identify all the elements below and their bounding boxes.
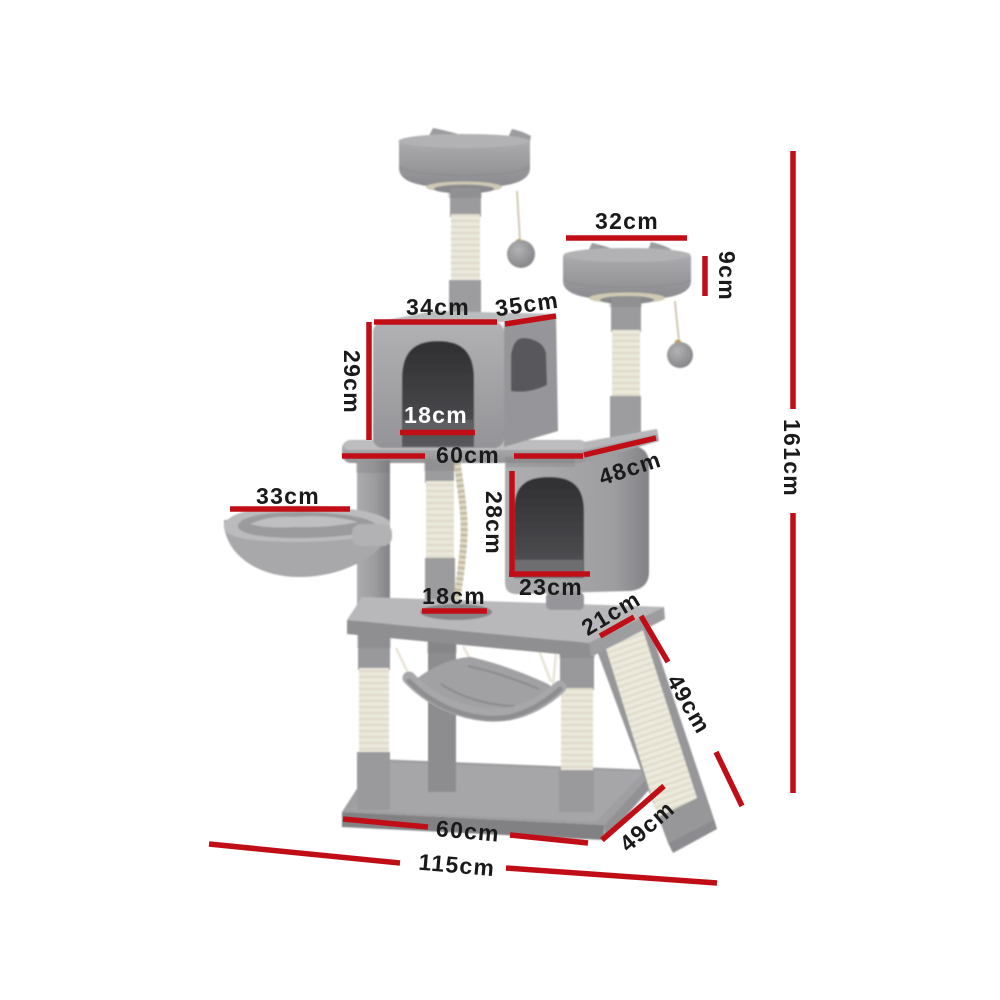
svg-text:28cm: 28cm — [481, 491, 507, 555]
svg-text:29cm: 29cm — [339, 350, 365, 414]
svg-text:60cm: 60cm — [435, 815, 501, 846]
svg-text:161cm: 161cm — [779, 419, 805, 497]
svg-text:18cm: 18cm — [404, 402, 468, 428]
svg-text:9cm: 9cm — [714, 251, 740, 301]
svg-text:18cm: 18cm — [422, 583, 486, 609]
svg-text:32cm: 32cm — [595, 208, 659, 234]
svg-text:34cm: 34cm — [406, 294, 470, 320]
svg-text:23cm: 23cm — [519, 574, 583, 600]
svg-text:33cm: 33cm — [256, 483, 320, 509]
svg-text:60cm: 60cm — [436, 442, 500, 468]
